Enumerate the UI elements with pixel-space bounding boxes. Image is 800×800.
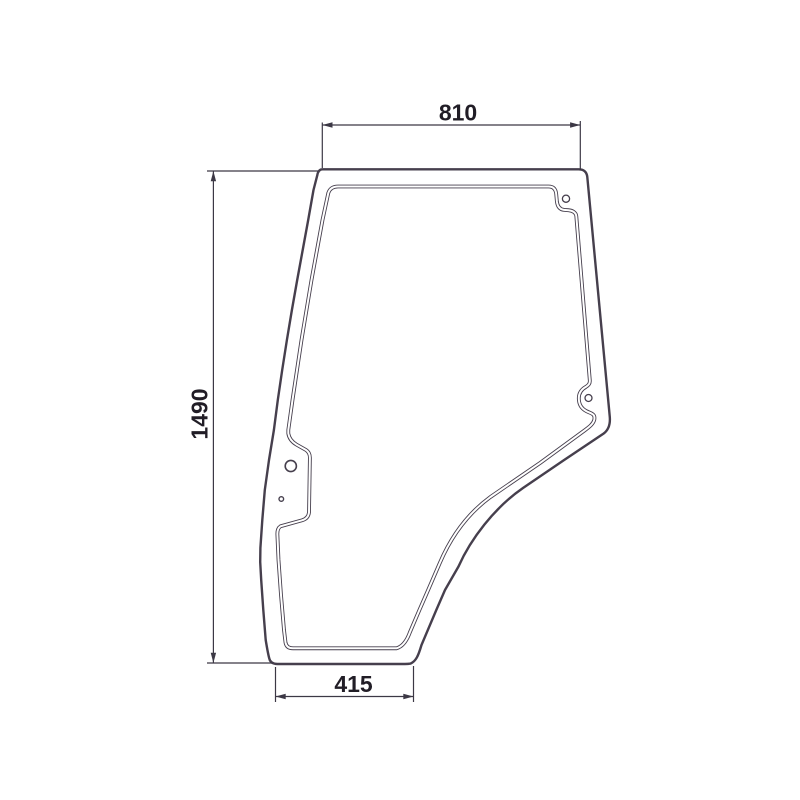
svg-text:810: 810 [439, 100, 477, 126]
svg-text:1490: 1490 [186, 388, 212, 439]
svg-text:415: 415 [334, 671, 373, 697]
